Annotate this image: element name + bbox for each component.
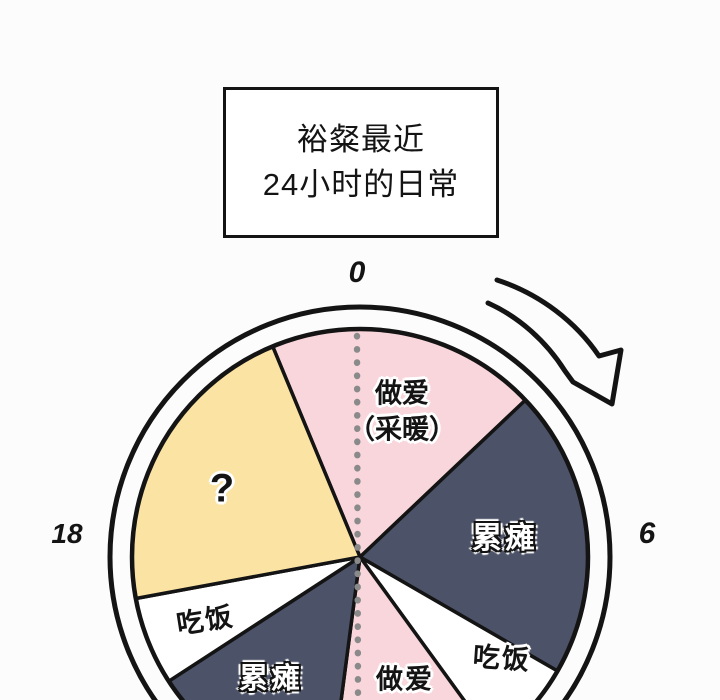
title-box: 裕粲最近 24小时的日常 — [223, 87, 499, 238]
title-line-2: 24小时的日常 — [263, 166, 459, 205]
title-line-1: 裕粲最近 — [297, 121, 425, 160]
pie-wedges — [132, 329, 588, 700]
hour-label-6: 6 — [639, 517, 656, 551]
comic-panel: 裕粲最近 24小时的日常 0 6 18 做爱 （采暖） 累瘫 吃饭 做爱 累瘫 … — [0, 0, 720, 700]
hour-label-18: 18 — [51, 518, 82, 550]
hour-label-0: 0 — [349, 256, 366, 290]
